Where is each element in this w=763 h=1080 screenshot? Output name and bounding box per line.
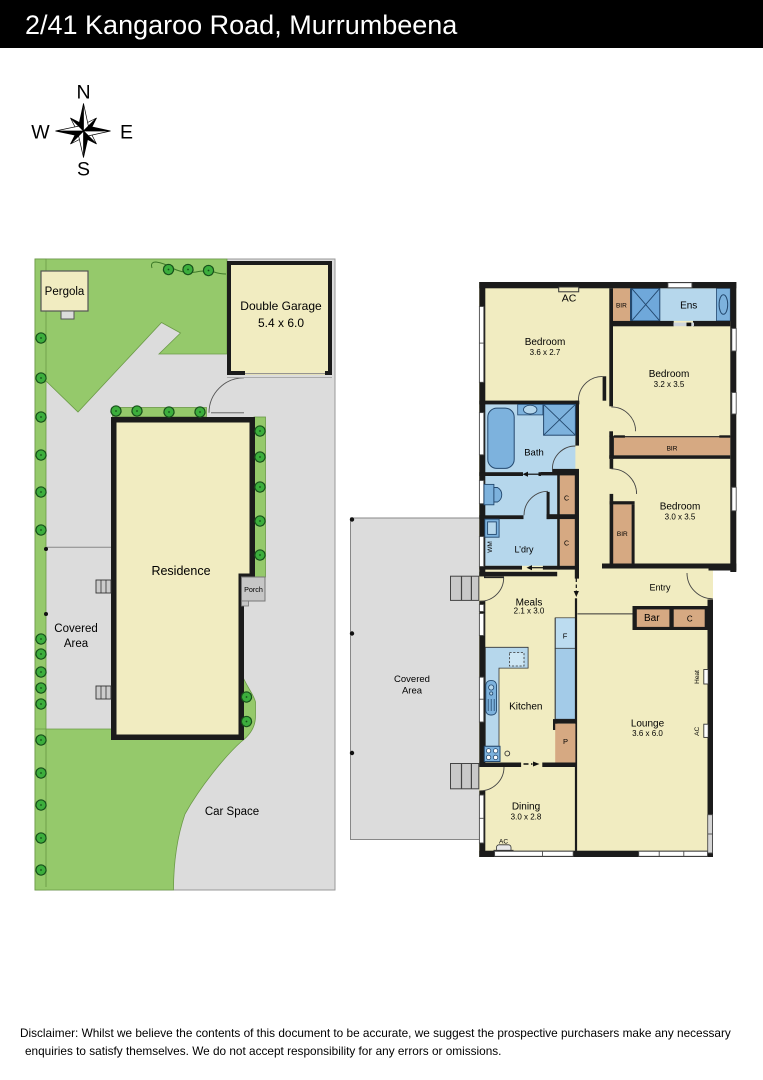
svg-text:2.1 x 3.0: 2.1 x 3.0	[514, 607, 545, 616]
svg-text:Bedroom: Bedroom	[649, 369, 690, 380]
svg-text:Ens: Ens	[680, 301, 697, 312]
svg-text:BIR: BIR	[617, 531, 628, 538]
svg-text:S: S	[77, 158, 90, 180]
svg-text:3.0 x 3.5: 3.0 x 3.5	[665, 513, 696, 522]
svg-text:5.4 x 6.0: 5.4 x 6.0	[258, 316, 304, 330]
svg-text:C: C	[564, 541, 569, 548]
svg-text:Covered: Covered	[394, 674, 430, 685]
svg-text:Heat: Heat	[694, 670, 701, 684]
svg-text:Residence: Residence	[151, 564, 210, 578]
svg-text:C: C	[564, 496, 569, 503]
svg-text:Bedroom: Bedroom	[660, 502, 701, 513]
svg-text:Porch: Porch	[244, 585, 263, 594]
svg-text:E: E	[120, 121, 133, 143]
svg-text:L’dry: L’dry	[514, 545, 534, 555]
svg-text:Kitchen: Kitchen	[509, 702, 542, 713]
svg-text:3.6 x 2.7: 3.6 x 2.7	[530, 348, 561, 357]
svg-text:3.0 x 2.8: 3.0 x 2.8	[511, 813, 542, 822]
svg-text:Bar: Bar	[644, 613, 660, 624]
svg-text:Double Garage: Double Garage	[240, 299, 322, 313]
svg-text:Covered: Covered	[54, 623, 97, 635]
svg-text:Lounge: Lounge	[631, 719, 665, 730]
svg-text:3.2 x 3.5: 3.2 x 3.5	[654, 380, 685, 389]
svg-text:Bath: Bath	[524, 448, 544, 459]
svg-text:N: N	[76, 81, 90, 103]
svg-text:Pergola: Pergola	[45, 286, 85, 298]
svg-text:Disclaimer: Whilst we believe: Disclaimer: Whilst we believe the conten…	[20, 1026, 731, 1040]
svg-text:Area: Area	[64, 638, 89, 650]
svg-text:C: C	[687, 615, 693, 624]
svg-text:AC: AC	[499, 839, 508, 846]
svg-text:AC: AC	[694, 726, 701, 735]
svg-text:BIR: BIR	[667, 446, 678, 453]
svg-text:Entry: Entry	[649, 583, 671, 593]
svg-text:P: P	[563, 737, 568, 746]
svg-text:Car Space: Car Space	[205, 806, 259, 818]
svg-text:W: W	[31, 121, 50, 143]
svg-text:BIR: BIR	[616, 303, 627, 310]
svg-text:2/41 Kangaroo Road, Murrumbeen: 2/41 Kangaroo Road, Murrumbeena	[25, 10, 458, 40]
svg-text:Area: Area	[402, 686, 423, 697]
svg-text:Bedroom: Bedroom	[525, 337, 566, 348]
svg-text:F: F	[563, 632, 568, 641]
svg-text:Dining: Dining	[512, 802, 540, 813]
svg-text:3.6 x 6.0: 3.6 x 6.0	[632, 729, 663, 738]
svg-text:enquiries to satisfy themselve: enquiries to satisfy themselves. We do n…	[25, 1044, 501, 1058]
svg-text:WM: WM	[487, 541, 494, 553]
svg-text:AC: AC	[562, 293, 577, 305]
